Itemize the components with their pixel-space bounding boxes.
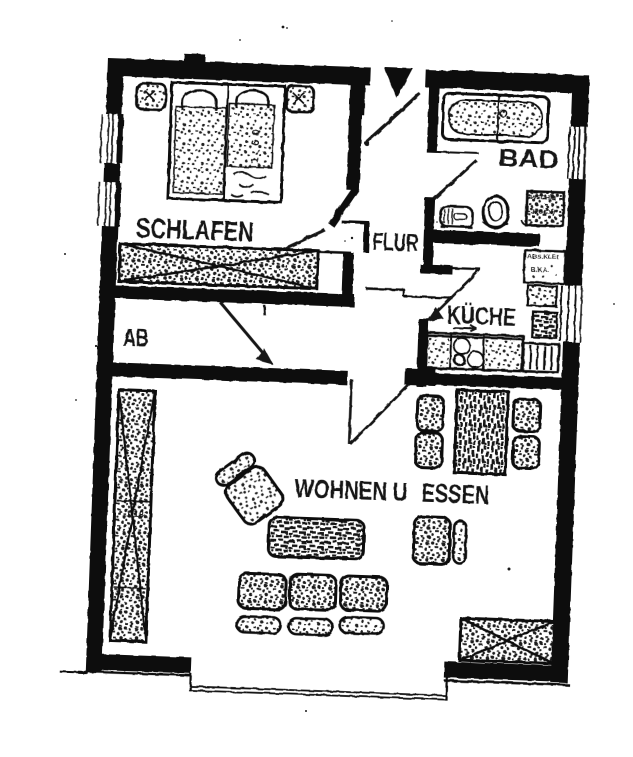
svg-text:FLUR: FLUR bbox=[372, 228, 419, 258]
svg-text:AB: AB bbox=[122, 324, 149, 353]
svg-text:ABS.KLEI: ABS.KLEI bbox=[527, 253, 559, 261]
svg-text:WSCHM: WSCHM bbox=[530, 194, 556, 202]
svg-text:SCHLAFEN: SCHLAFEN bbox=[135, 212, 254, 247]
svg-text:1.10: 1.10 bbox=[126, 509, 144, 520]
svg-text:BAD: BAD bbox=[498, 144, 559, 174]
svg-text:JZGEX I: JZGEX I bbox=[531, 208, 556, 216]
svg-text:B.KA.: B.KA. bbox=[530, 266, 549, 274]
svg-text:WOHNEN U: WOHNEN U bbox=[294, 473, 408, 507]
svg-text:1.60: 1.60 bbox=[249, 129, 262, 163]
svg-text:ESSEN: ESSEN bbox=[421, 478, 490, 510]
